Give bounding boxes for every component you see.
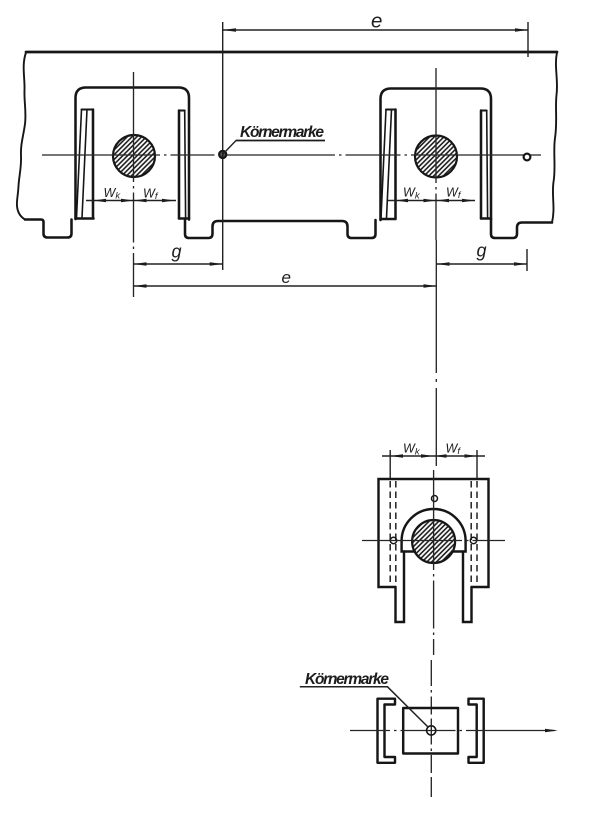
svg-text:e: e	[282, 268, 291, 287]
svg-text:Körnermarke: Körnermarke	[305, 671, 389, 688]
svg-text:g: g	[477, 241, 487, 261]
svg-text:e: e	[371, 10, 382, 33]
svg-text:g: g	[172, 242, 182, 262]
svg-text:Körnermarke: Körnermarke	[240, 124, 324, 141]
